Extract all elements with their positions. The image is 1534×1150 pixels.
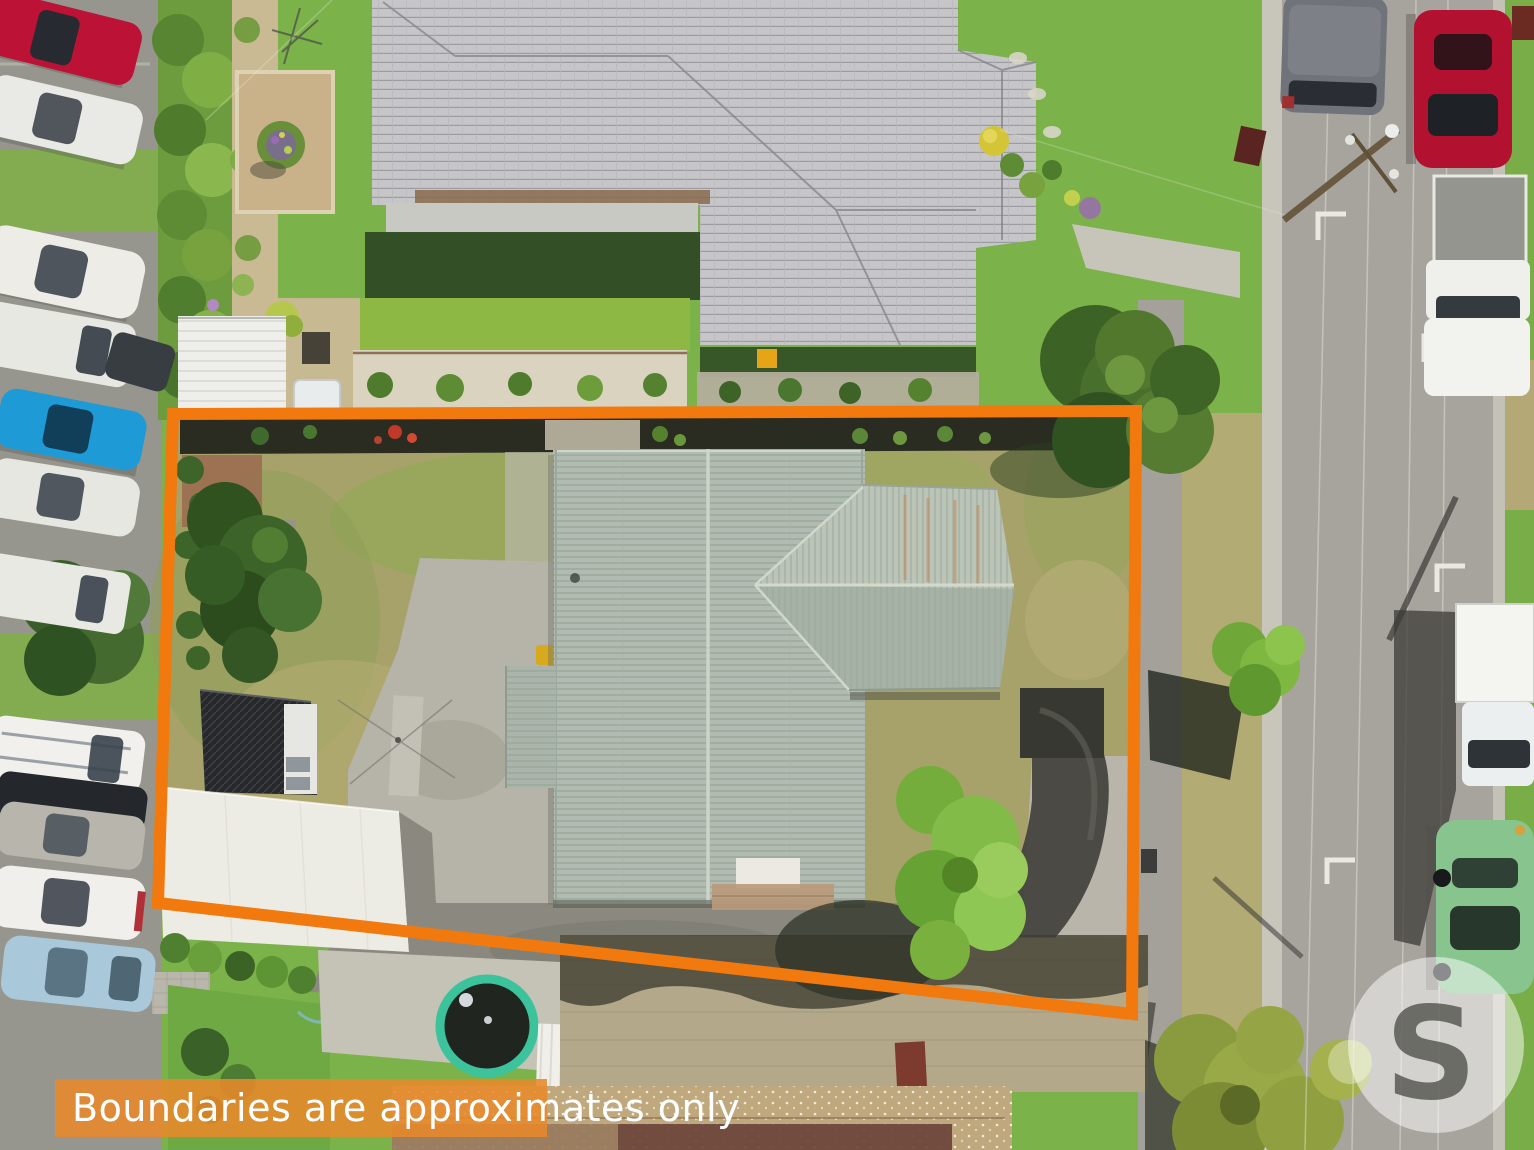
house-shadow-on-lawn — [365, 232, 700, 300]
wheelie-bin — [1512, 6, 1534, 40]
parked-truck-white — [1456, 604, 1534, 786]
trampoline — [440, 979, 534, 1073]
dark-shed — [200, 690, 317, 795]
timber-fascia — [415, 190, 710, 204]
disclaimer-text: Boundaries are approximates only — [72, 1086, 740, 1130]
brick-chimney — [712, 884, 834, 910]
watermark-s-letter: S — [1385, 980, 1477, 1129]
parked-car-red — [1406, 10, 1512, 168]
watermark: S — [1348, 957, 1524, 1133]
square-garden-bed — [237, 72, 333, 212]
rubbish-bin — [1141, 849, 1157, 873]
parking-grass-strip — [0, 150, 162, 232]
boundary-garden-bed — [180, 415, 1130, 454]
crates — [302, 332, 330, 364]
roof-vent — [570, 573, 580, 583]
disclaimer-banner: Boundaries are approximates only — [55, 1079, 740, 1137]
purple-flower — [207, 299, 219, 311]
aerial-photo: Boundaries are approximates only S — [0, 0, 1534, 1150]
aerial-photo-page: Boundaries are approximates only S — [0, 0, 1534, 1150]
parked-car-dark-suv — [1280, 0, 1388, 116]
roof-annex — [506, 666, 556, 788]
whirlybird-box — [736, 858, 800, 888]
white-garage — [178, 316, 286, 418]
side-walkway — [505, 452, 555, 562]
parked-car-white-ute — [1424, 176, 1530, 396]
lawn-patch — [1025, 560, 1135, 680]
left-kerb-strip — [1262, 0, 1284, 1150]
yellow-letterbox — [757, 349, 777, 368]
purple-flower-bush — [1079, 197, 1101, 219]
red-flowers — [388, 425, 402, 439]
sunlit-wall — [386, 203, 698, 233]
red-kennel — [895, 1041, 928, 1093]
shrub — [181, 1028, 229, 1076]
flower-bed-shadow — [250, 161, 286, 179]
sunlit-lawn-strip — [360, 298, 690, 352]
